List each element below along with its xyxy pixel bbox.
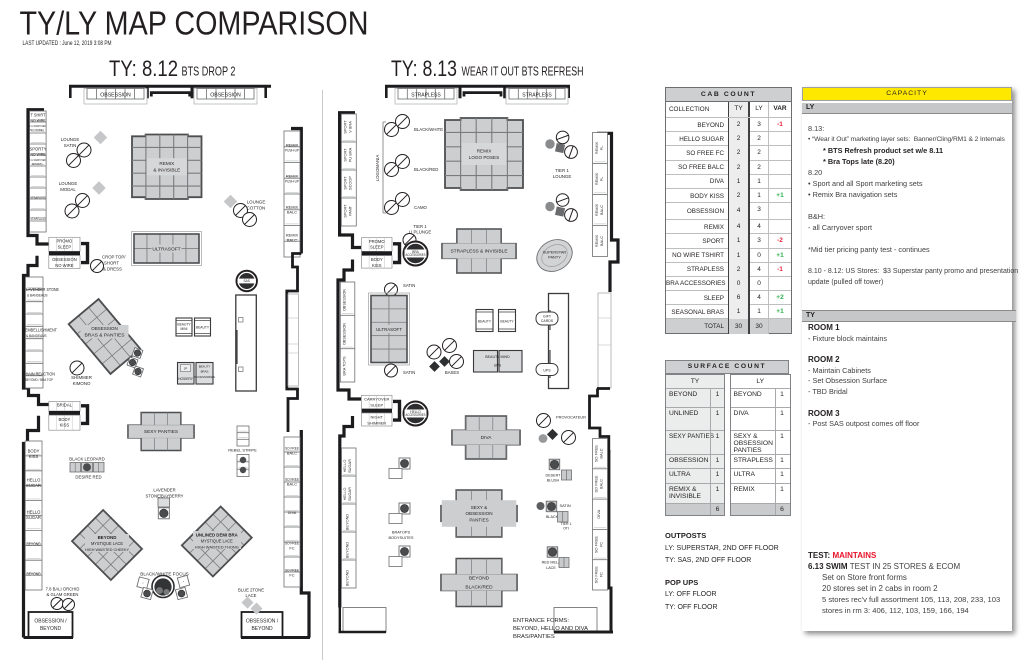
svg-text:7.8 BALI ORCHID: 7.8 BALI ORCHID [46, 587, 80, 592]
svg-text:BEAUTY: BEAUTY [199, 365, 211, 369]
svg-text:SLEEP: SLEEP [370, 245, 384, 250]
svg-text:(BEYOND / BRA TOP: (BEYOND / BRA TOP [24, 378, 53, 382]
svg-text:BEYOND, HELLO AND DIVA: BEYOND, HELLO AND DIVA [513, 626, 588, 632]
svg-text:NIGHT: NIGHT [371, 415, 384, 420]
svg-text:ENTRANCE FORMS:: ENTRANCE FORMS: [513, 618, 569, 624]
svg-text:LAVENDER: LAVENDER [153, 488, 175, 493]
svg-text:UPS: UPS [543, 369, 551, 373]
svg-text:BALC: BALC [287, 451, 297, 456]
svg-text:CARDS: CARDS [541, 319, 554, 323]
svg-text:ULTRASOFT: ULTRASOFT [152, 247, 180, 253]
svg-text:SPORT): SPORT) [32, 162, 43, 166]
svg-text:BTS DROP 2: BTS DROP 2 [182, 64, 236, 79]
svg-text:PANTY: PANTY [548, 255, 561, 260]
svg-text:PANTIES: PANTIES [469, 517, 488, 522]
svg-text:BLACK LEOPARD: BLACK LEOPARD [69, 457, 105, 462]
svg-text:NO WIRE: NO WIRE [31, 152, 46, 157]
svg-text:BRAS & PANTIES: BRAS & PANTIES [85, 332, 125, 337]
svg-text:BLACK/RED: BLACK/RED [465, 585, 493, 591]
svg-text:OBSESSION: OBSESSION [52, 257, 77, 262]
svg-text:NO WIRE: NO WIRE [31, 118, 46, 123]
svg-text:SUGAR: SUGAR [347, 487, 352, 501]
svg-text:MODAL: MODAL [60, 187, 76, 192]
svg-text:SATIN: SATIN [560, 503, 571, 508]
svg-text:PU BRA: PU BRA [348, 147, 353, 162]
svg-text:BEYOND: BEYOND [27, 542, 41, 547]
svg-text:PL: PL [599, 145, 604, 151]
svg-text:DIVA: DIVA [481, 435, 493, 441]
svg-text:MYSTIQUE LACE: MYSTIQUE LACE [201, 539, 233, 544]
svg-text:BEYOND: BEYOND [27, 572, 41, 577]
svg-text:SATIN: SATIN [64, 143, 77, 148]
svg-text:OBSESSION: OBSESSION [342, 289, 347, 311]
svg-text:BRATOPS: BRATOPS [392, 530, 411, 535]
svg-text:WEAR IT OUT BTS REFRESH: WEAR IT OUT BTS REFRESH [462, 64, 584, 79]
svg-text:BALC: BALC [287, 238, 297, 243]
svg-text:FC: FC [599, 572, 604, 577]
svg-text:BALC: BALC [287, 482, 297, 487]
svg-text:TIER 1: TIER 1 [413, 224, 427, 229]
svg-text:PANT: PANT [348, 205, 353, 216]
svg-text:BEYOND: BEYOND [345, 542, 350, 559]
svg-text:DESERT: DESERT [546, 474, 562, 478]
svg-text:REMIX: REMIX [159, 161, 175, 166]
svg-text:SCOOP: SCOOP [348, 176, 353, 190]
svg-text:HELLO: HELLO [27, 510, 41, 515]
svg-text:TY/LY MAP COMPARISON: TY/LY MAP COMPARISON [20, 6, 369, 43]
svg-text:BALC: BALC [287, 210, 297, 215]
svg-text:PROVOCATEUR: PROVOCATEUR [556, 415, 586, 420]
svg-text:KISS: KISS [372, 263, 382, 268]
svg-text:SHIMMER: SHIMMER [367, 420, 386, 425]
svg-text:BRAS: BRAS [201, 370, 209, 374]
svg-text:BODY: BODY [58, 417, 70, 422]
svg-text:KISS: KISS [60, 423, 70, 428]
svg-text:PROMO: PROMO [56, 239, 73, 244]
svg-text:SAS: SAS [244, 279, 250, 283]
svg-text:REMIX: REMIX [477, 148, 492, 153]
svg-text:BEYOND: BEYOND [40, 626, 62, 632]
svg-text:DESIRE RED: DESIRE RED [75, 475, 101, 480]
svg-text:KISS: KISS [29, 454, 39, 459]
svg-text:LOUNGE: LOUNGE [247, 200, 266, 205]
svg-text:BEAUTY: BEAUTY [500, 320, 514, 324]
svg-text:KIMONO: KIMONO [73, 381, 91, 386]
svg-text:MINI: MINI [181, 327, 188, 331]
svg-text:ACCESSORIES: ACCESSORIES [194, 375, 215, 379]
svg-text:SHIMMER: SHIMMER [71, 375, 92, 380]
svg-text:BLUSH: BLUSH [547, 479, 560, 483]
svg-text:HIGH WAISTED THONG: HIGH WAISTED THONG [195, 544, 239, 549]
svg-text:OBSESSION /: OBSESSION / [34, 619, 67, 625]
svg-text:MYSTIQUE LACE: MYSTIQUE LACE [91, 541, 123, 546]
svg-text:T SHIRT: T SHIRT [31, 113, 46, 118]
svg-text:SEXY PANTIES: SEXY PANTIES [144, 429, 178, 435]
svg-text:UPS: UPS [494, 364, 502, 368]
svg-text:BEAUTY MIND: BEAUTY MIND [485, 355, 510, 359]
svg-text:BEYOND: BEYOND [469, 576, 490, 582]
svg-text:DIVA: DIVA [596, 509, 601, 518]
svg-text:LAVENDER STONE: LAVENDER STONE [26, 287, 59, 292]
svg-text:NO WIRE: NO WIRE [55, 263, 74, 268]
svg-text:OBSESSION: OBSESSION [342, 323, 347, 345]
svg-text:SUGAR: SUGAR [347, 459, 352, 473]
svg-text:SUGAR: SUGAR [26, 483, 41, 488]
svg-text:UNLINED DEMI BRA: UNLINED DEMI BRA [196, 533, 239, 538]
svg-text:LAST UPDATED : June 12, 2019 3: LAST UPDATED : June 12, 2019 3:08 PM [23, 41, 112, 47]
svg-text:ACCESSORIES: ACCESSORIES [406, 253, 426, 257]
svg-text:TY: 8.12: TY: 8.12 [109, 56, 178, 81]
svg-text:STRAPLESS: STRAPLESS [30, 216, 46, 221]
svg-text:FC: FC [599, 542, 604, 547]
svg-text:BEAUTY: BEAUTY [196, 326, 210, 330]
svg-text:HELLO: HELLO [27, 478, 41, 483]
svg-text:OBSESSION /: OBSESSION / [246, 619, 279, 625]
svg-text:BEYOND: BEYOND [345, 570, 350, 587]
svg-text:NO WIRE): NO WIRE) [30, 128, 44, 132]
svg-text:& INVISIBLE: & INVISIBLE [153, 168, 180, 173]
svg-text:& BANDEAUS: & BANDEAUS [26, 334, 47, 338]
svg-text:REBEL STRIPE: REBEL STRIPE [228, 448, 257, 453]
svg-text:OBSESSION: OBSESSION [210, 92, 241, 98]
svg-text:SLEEP: SLEEP [370, 402, 383, 407]
svg-text:BASES: BASES [445, 370, 459, 375]
svg-text:HOSIERY: HOSIERY [178, 377, 194, 381]
svg-text:LOUNGE: LOUNGE [553, 174, 572, 179]
svg-text:BALC: BALC [599, 448, 604, 458]
svg-text:BLACK: BLACK [546, 515, 559, 519]
svg-text:CROP TOP/: CROP TOP/ [102, 255, 126, 260]
svg-text:LOGOMANIA: LOGOMANIA [375, 155, 380, 182]
svg-text:BEYOND: BEYOND [251, 626, 273, 632]
svg-text:BALC: BALC [599, 236, 604, 246]
svg-text:GIFT: GIFT [543, 314, 552, 318]
svg-text:LOGO POSES: LOGO POSES [469, 155, 499, 160]
svg-text:& BANDEAUS: & BANDEAUS [27, 294, 48, 298]
svg-text:BODYSUITES: BODYSUITES [388, 535, 413, 540]
svg-text:BRA TOPS: BRA TOPS [342, 356, 347, 376]
svg-text:SPORTY: SPORTY [29, 147, 46, 152]
svg-text:OBSESSION: OBSESSION [100, 92, 131, 98]
svg-text:STRAPLESS: STRAPLESS [411, 92, 441, 98]
svg-text:BALC: BALC [599, 479, 604, 489]
svg-text:BRAS/PANTIES: BRAS/PANTIES [513, 634, 555, 640]
svg-text:COTTON: COTTON [247, 206, 265, 211]
svg-text:FC: FC [289, 573, 294, 578]
svg-text:DIVA: DIVA [288, 510, 297, 515]
svg-text:OBSESSION: OBSESSION [465, 511, 492, 516]
svg-text:STONE/BAYBERRY: STONE/BAYBERRY [146, 493, 184, 498]
svg-text:PUSH-UP: PUSH-UP [285, 179, 299, 184]
svg-text:EMBELLISHMENT: EMBELLISHMENT [25, 328, 57, 333]
svg-text:SEXY &: SEXY & [471, 505, 488, 510]
svg-text:BLUE 2TONE: BLUE 2TONE [238, 588, 264, 593]
svg-text:BLACK/RED: BLACK/RED [414, 167, 438, 172]
svg-text:TY: 8.13: TY: 8.13 [391, 56, 457, 81]
svg-text:SATIN: SATIN [403, 283, 415, 288]
svg-text:V BRA: V BRA [348, 121, 353, 133]
svg-text:CAMO: CAMO [414, 205, 428, 210]
svg-text:TIER 1: TIER 1 [555, 168, 569, 173]
svg-text:ACCESSORIES: ACCESSORIES [406, 413, 426, 417]
svg-text:STRAPLESS: STRAPLESS [522, 92, 552, 98]
svg-text:SUGAR: SUGAR [26, 515, 41, 520]
svg-text:TIER 1: TIER 1 [561, 522, 572, 526]
svg-text:PROMO: PROMO [369, 239, 386, 244]
svg-text:BEYOND: BEYOND [345, 514, 350, 531]
svg-text:CARRYOVER: CARRYOVER [364, 397, 389, 402]
svg-text:BLACK/WHITE: BLACK/WHITE [414, 127, 443, 132]
svg-text:PL: PL [599, 176, 604, 182]
svg-text:PUSH-UP: PUSH-UP [285, 148, 299, 153]
svg-text:RED MELA: RED MELA [542, 561, 561, 565]
svg-text:& DRESS: & DRESS [103, 267, 122, 272]
svg-text:BEAUTY: BEAUTY [478, 320, 492, 324]
svg-text:STRAPLESS: STRAPLESS [30, 195, 46, 200]
svg-text:SHORT: SHORT [104, 261, 119, 266]
svg-text:OBSESSION: OBSESSION [91, 326, 118, 331]
svg-text:SATIN: SATIN [403, 370, 415, 375]
svg-text:BRIDAL: BRIDAL [57, 403, 73, 408]
svg-text:ULTRASOFT: ULTRASOFT [376, 327, 402, 332]
svg-text:BEYOND: BEYOND [98, 535, 117, 540]
svg-text:BEAUTY: BEAUTY [177, 323, 191, 327]
svg-text:BODY: BODY [28, 449, 40, 454]
svg-text:SLEEP: SLEEP [58, 244, 72, 249]
svg-text:LOUNGE: LOUNGE [59, 181, 78, 186]
svg-text:BALC: BALC [599, 205, 604, 215]
svg-text:BODY: BODY [371, 257, 383, 262]
svg-text:OTI: OTI [563, 527, 569, 531]
svg-text:LOUNGE: LOUNGE [61, 137, 80, 142]
svg-text:JP: JP [184, 367, 188, 371]
svg-text:CHAIN REACTION: CHAIN REACTION [23, 372, 55, 377]
svg-text:STRAPLESS & INVISIBLE: STRAPLESS & INVISIBLE [450, 249, 507, 255]
svg-text:FC: FC [289, 546, 294, 551]
svg-text:HIGH WAISTED CHEEKY: HIGH WAISTED CHEEKY [85, 547, 129, 552]
svg-text:& GLAM GREEN: & GLAM GREEN [47, 592, 79, 597]
svg-text:LACE: LACE [546, 566, 556, 570]
